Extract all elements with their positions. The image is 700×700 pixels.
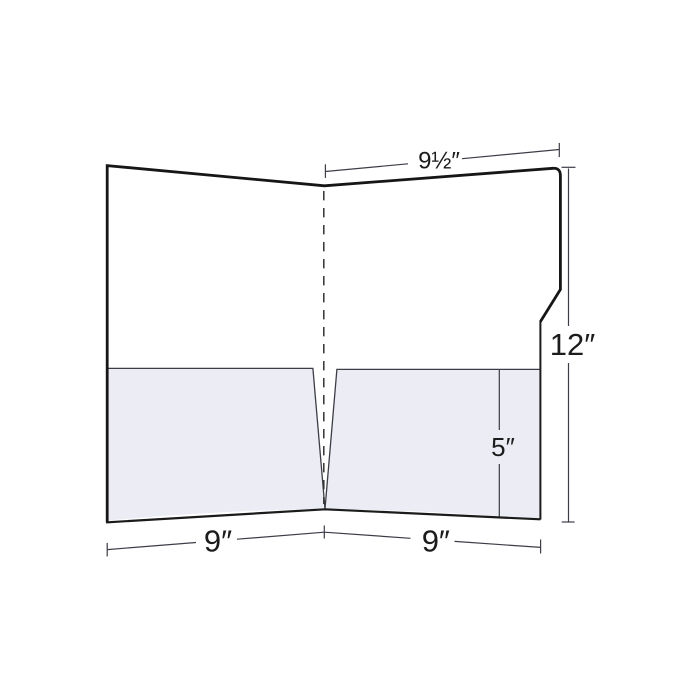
svg-text:9″: 9″	[422, 524, 450, 559]
svg-text:9″: 9″	[204, 524, 232, 559]
svg-text:12″: 12″	[550, 327, 595, 362]
svg-text:5″: 5″	[491, 432, 515, 462]
svg-text:9½″: 9½″	[418, 148, 460, 175]
